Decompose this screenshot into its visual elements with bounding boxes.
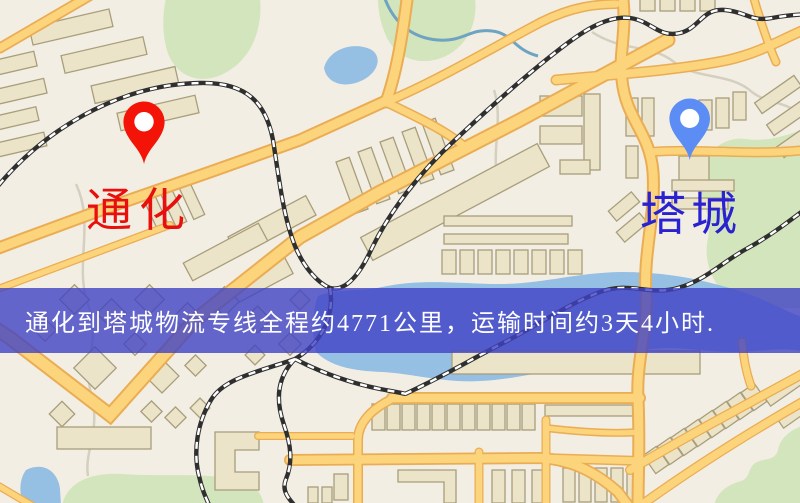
map-container: 通化 塔城 通化到塔城物流专线全程约4771公里，运输时间约3天4小时. <box>0 0 800 503</box>
origin-city-label: 通化 <box>86 174 192 240</box>
destination-pin-hole <box>680 109 699 128</box>
route-info-text: 通化到塔城物流专线全程约4771公里，运输时间约3天4小时. <box>0 303 715 338</box>
origin-pin-hole <box>134 112 153 131</box>
map-canvas <box>0 0 800 503</box>
route-info-banner: 通化到塔城物流专线全程约4771公里，运输时间约3天4小时. <box>0 288 800 353</box>
destination-city-label: 塔城 <box>640 178 742 244</box>
